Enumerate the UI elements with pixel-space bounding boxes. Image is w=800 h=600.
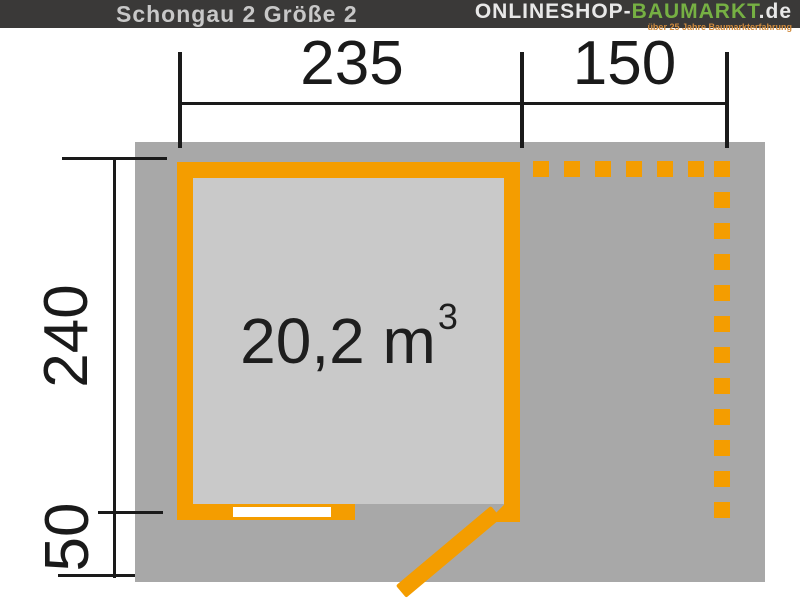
room-volume-value: 20,2 m <box>240 304 436 378</box>
extension-dashed-line-top <box>533 161 704 177</box>
dimension-line-left <box>113 157 116 578</box>
shop-logo: ONLINESHOP-BAUMARKT.de über 25 Jahre Bau… <box>475 1 792 32</box>
product-title: Schongau 2 Größe 2 <box>116 0 358 28</box>
dimension-tick-left-top <box>62 157 167 160</box>
room-volume-label: 20,2 m3 <box>174 303 524 379</box>
product-diagram-page: Schongau 2 Größe 2 ONLINESHOP-BAUMARKT.d… <box>0 0 800 600</box>
shop-logo-wordmark: ONLINESHOP-BAUMARKT.de <box>475 1 792 22</box>
dimension-label-150: 150 <box>522 33 727 95</box>
dimension-label-235: 235 <box>182 33 522 95</box>
header-bar: Schongau 2 Größe 2 ONLINESHOP-BAUMARKT.d… <box>0 0 800 28</box>
logo-part-onlineshop: ONLINESHOP- <box>475 0 632 23</box>
dimension-tick-left-middle <box>98 511 163 514</box>
dimension-label-50: 50 <box>37 437 99 600</box>
dimension-line-top <box>180 102 727 105</box>
logo-part-baumarkt: BAUMARKT <box>632 0 759 23</box>
window <box>233 507 331 517</box>
extension-dashed-line-right <box>714 161 730 518</box>
room-volume-exponent: 3 <box>438 299 458 335</box>
logo-part-de: .de <box>759 0 792 23</box>
